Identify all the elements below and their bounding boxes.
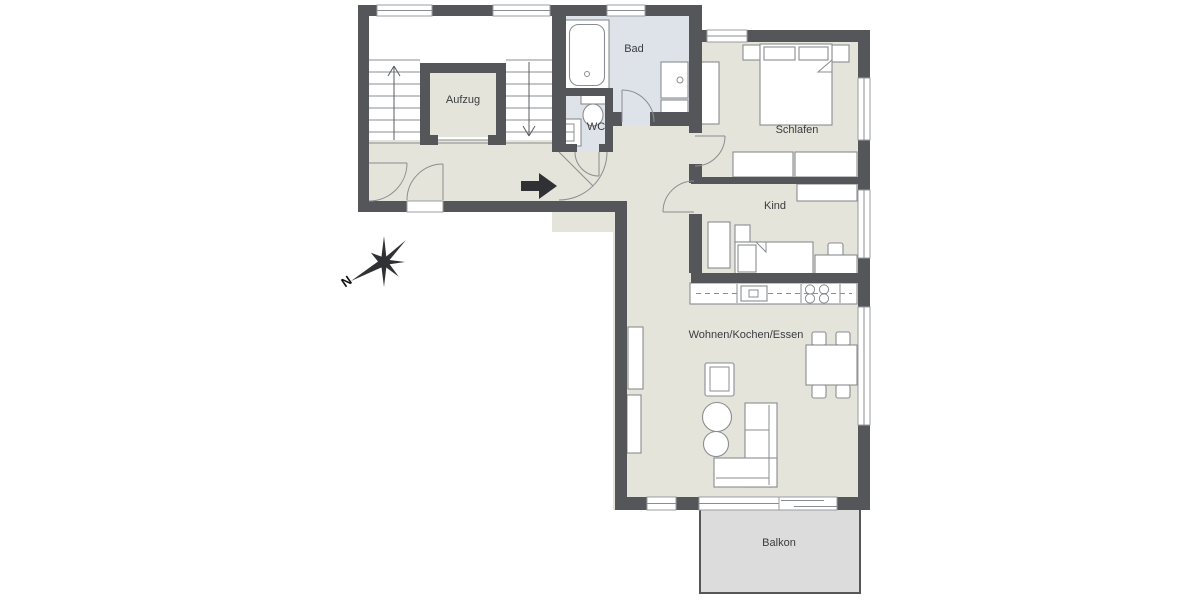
floor-plan: Aufzug Bad WC Schlafen Kind Wohnen/Koche… (0, 0, 1200, 600)
bathtub-icon (565, 20, 609, 90)
shower-icon (661, 62, 688, 98)
nightstand-icon (832, 45, 849, 62)
window-icon (699, 497, 779, 510)
room-label-kind: Kind (764, 200, 786, 212)
floor-plan-page: Aufzug Bad WC Schlafen Kind Wohnen/Koche… (0, 0, 1200, 600)
kitchen-sink-icon (741, 286, 767, 301)
room-label-balkon: Balkon (762, 537, 796, 549)
window-icon (707, 30, 747, 42)
wardrobe-icon (708, 222, 730, 268)
balcony-floor (700, 509, 860, 593)
sideboard-icon (627, 395, 641, 453)
north-arrow-icon: N (338, 236, 406, 290)
room-label-wc: WC (587, 121, 605, 133)
north-label: N (338, 272, 354, 290)
window-icon (647, 497, 676, 510)
room-label-bad: Bad (624, 43, 644, 55)
window-icon (377, 5, 432, 16)
sliding-door-icon (779, 497, 837, 510)
room-label-wohnen: Wohnen/Kochen/Essen (689, 329, 804, 341)
wardrobe-icon (701, 62, 719, 124)
room-label-aufzug: Aufzug (446, 94, 480, 106)
dresser-icon (733, 152, 793, 177)
nightstand-icon (743, 45, 760, 60)
window-icon (858, 78, 870, 140)
window-icon (493, 5, 550, 16)
window-icon (858, 190, 870, 258)
single-bed-icon (735, 242, 813, 275)
cabinet-icon (797, 184, 857, 201)
landing-floor (363, 140, 555, 205)
room-label-schlafen: Schlafen (776, 124, 819, 136)
window-icon (607, 5, 645, 16)
kitchen-counter-icon (690, 283, 857, 304)
window-icon (858, 307, 870, 425)
sideboard-icon (628, 327, 643, 389)
armchair-icon (705, 363, 734, 396)
shelf-icon (735, 225, 750, 242)
dresser-icon (795, 152, 857, 177)
double-bed-icon (760, 44, 832, 125)
